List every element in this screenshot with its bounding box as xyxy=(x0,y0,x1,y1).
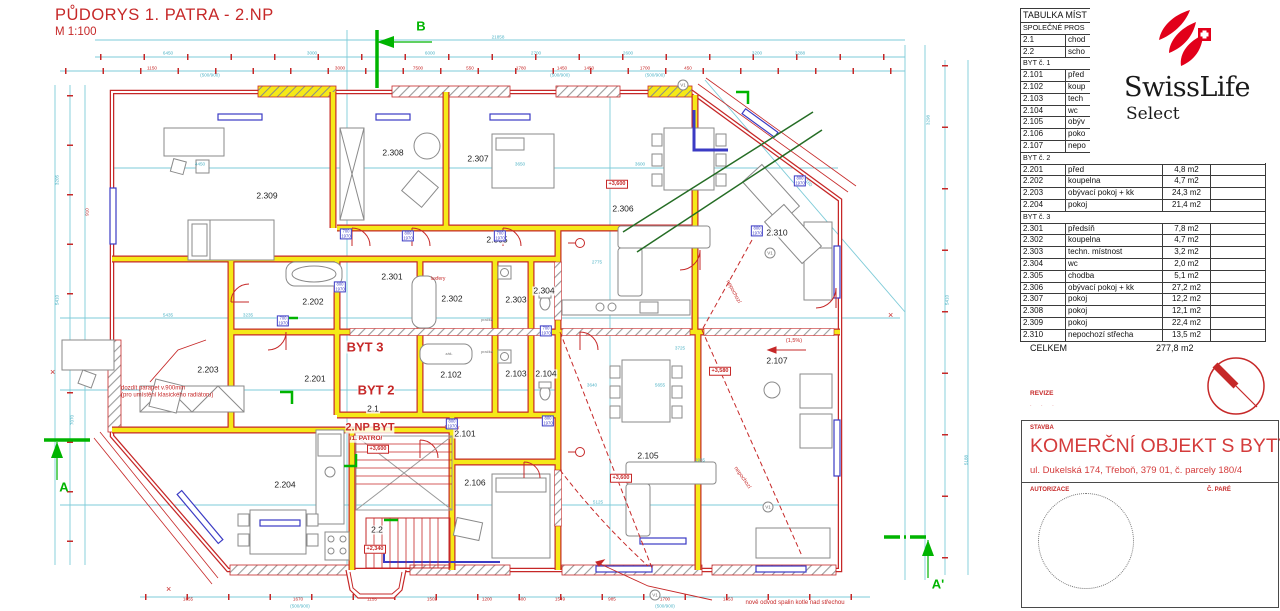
dimension-label: 5655 xyxy=(655,383,665,388)
door-size-label: 800 1970 xyxy=(751,225,763,236)
dimension-label: 3650 xyxy=(515,162,525,167)
revize-label: REVIZE xyxy=(1030,390,1053,397)
annotation: nově odvod spalin kotle nad střechou xyxy=(745,600,844,607)
dimension-label: 3600 xyxy=(635,162,645,167)
dimension-label: 3235 xyxy=(243,313,253,318)
dimension-label: 2700 xyxy=(531,51,541,56)
dimension-label: (500/900) xyxy=(645,73,665,78)
elevation-badge: +3,600 xyxy=(606,180,628,189)
room-label: 2.308 xyxy=(381,149,404,158)
room-label: 2.203 xyxy=(196,366,219,375)
annotation: nepochozí xyxy=(724,279,742,304)
room-label: 2.303 xyxy=(504,296,527,305)
room-label: 2.103 xyxy=(504,370,527,379)
table-row: 2.305chodba5,1 m2 xyxy=(1021,270,1266,282)
dimension-label: 1700 xyxy=(660,597,670,602)
room-label: 2.301 xyxy=(380,273,403,282)
section-letter: A' xyxy=(932,577,944,592)
drawing-title-block: PŮDORYS 1. PATRA - 2.NP M 1:100 xyxy=(55,6,274,38)
dimension-label: 5435 xyxy=(163,313,173,318)
swisslife-logo-icon xyxy=(1146,8,1216,74)
room-label: 2.102 xyxy=(439,371,462,380)
dimension-label: 1780 xyxy=(516,66,526,71)
table-row: 2.309pokoj22,4 m2 xyxy=(1021,317,1266,329)
dimension-label: 5125 xyxy=(593,500,603,505)
elevation-badge: +3,600 xyxy=(610,474,632,483)
room-label: 2.309 xyxy=(255,192,278,201)
dimension-label: 1502 xyxy=(427,597,437,602)
room-label: 2.105 xyxy=(636,452,659,461)
total-value: 277,8 m2 xyxy=(1156,343,1194,353)
dimension-label: 2600 xyxy=(623,51,633,56)
dimension-label: 1700 xyxy=(640,66,650,71)
dimension-label: 5410 xyxy=(55,295,60,305)
dimension-label: 450 xyxy=(684,66,692,71)
room-label: 2.104 xyxy=(534,370,557,379)
elevation-badge: +2,340 xyxy=(364,545,386,554)
dimension-label: 3288 xyxy=(795,51,805,56)
dimension-label: 5188 xyxy=(964,455,969,465)
room-label: 2.306 xyxy=(611,205,634,214)
table-row: 2.308pokoj12,1 m2 xyxy=(1021,306,1266,318)
dimension-label: (500/900) xyxy=(290,604,310,609)
drawing-title: PŮDORYS 1. PATRA - 2.NP xyxy=(55,6,274,25)
autorizace-label: AUTORIZACE xyxy=(1030,487,1069,493)
dimension-label: (500/900) xyxy=(200,73,220,78)
project-address: ul. Dukelská 174, Třeboň, 379 01, č. par… xyxy=(1030,465,1242,476)
dimension-label: 3298 xyxy=(926,115,931,125)
apartment-label: BYT 2 xyxy=(358,384,395,397)
door-size-label: 800 1970 xyxy=(334,281,346,292)
dimension-label: 2775 xyxy=(592,260,602,265)
door-size-label: 700 1970 xyxy=(277,315,289,326)
room-label: 2.204 xyxy=(273,481,296,490)
dimension-label: 5410 xyxy=(945,295,950,305)
window-marker: V1 xyxy=(763,502,774,513)
dimension-label: (500/900) xyxy=(550,73,570,78)
window-marker: V1 xyxy=(678,80,689,91)
title-block-divider xyxy=(1022,482,1278,483)
annotation: záš. xyxy=(445,351,452,358)
room-label: 2.106 xyxy=(463,479,486,488)
room-label: 2.307 xyxy=(466,155,489,164)
dimension-label: 3000 xyxy=(307,51,317,56)
table-row: 2.301předsíň7,8 m2 xyxy=(1021,223,1266,235)
section-letter: A xyxy=(59,480,68,495)
apartment-label: BYT 3 xyxy=(347,341,384,354)
dimension-label: 21858 xyxy=(492,35,505,40)
annotation: nepochozí xyxy=(732,466,752,491)
dimension-label: 1450 xyxy=(557,66,567,71)
pare-label: Č. PARÉ xyxy=(1207,487,1231,493)
dimension-label: 3640 xyxy=(587,383,597,388)
door-size-label: 800 1970 xyxy=(542,415,554,426)
revize-entries: · · · xyxy=(1030,403,1058,409)
dimension-label: 1450 xyxy=(584,66,594,71)
door-size-label: 700 1970 xyxy=(494,230,506,241)
door-size-label: 800 1970 xyxy=(446,418,458,429)
dimension-label: 1670 xyxy=(293,597,303,602)
table-row: 2.201před4,8 m2 xyxy=(1021,164,1266,176)
section-letter: B xyxy=(416,19,425,34)
annotation: (1,5%) xyxy=(786,338,802,345)
room-label: 2.310 xyxy=(765,229,788,238)
dimension-label: 4450 xyxy=(195,162,205,167)
stavba-label: STAVBA xyxy=(1030,425,1054,431)
annotation: luxfery xyxy=(431,276,446,283)
table-total-row: CELKEM 277,8 m2 xyxy=(1030,343,1067,353)
dimension-label: 910 xyxy=(85,208,90,216)
door-size-label: 700 1970 xyxy=(340,228,352,239)
door-size-label: 700 1970 xyxy=(540,325,552,336)
table-row: 2.302koupelna4,7 m2 xyxy=(1021,235,1266,247)
room-label: 2.202 xyxy=(301,298,324,307)
dimension-label: 7070 xyxy=(70,415,75,425)
annotation: pračka xyxy=(481,349,493,356)
dimension-label: 1150 xyxy=(147,66,157,71)
elevation-badge: +3,580 xyxy=(709,367,731,376)
north-arrow-icon xyxy=(1196,346,1276,426)
dimension-label: 1353 xyxy=(723,597,733,602)
dimension-label: 1155 xyxy=(367,597,377,602)
stamp-placeholder-circle xyxy=(1038,493,1134,589)
dimension-label: 7500 xyxy=(413,66,423,71)
dimension-label: 1200 xyxy=(482,597,492,602)
window-marker: V1 xyxy=(765,248,776,259)
apartment-label: /1. PATRO/ xyxy=(350,436,383,443)
table-row: 2.310nepochozí střecha13,5 m2 xyxy=(1021,329,1266,341)
drawing-scale: M 1:100 xyxy=(55,26,274,38)
project-title: KOMERČNÍ OBJEKT S BYTY xyxy=(1030,435,1280,458)
dimension-label: 6000 xyxy=(425,51,435,56)
table-row: 2.204pokoj21,4 m2 xyxy=(1021,199,1266,211)
plan-label-layer: 2.3092.3082.3072.3062.3102.3052.3012.202… xyxy=(0,0,1010,611)
room-label: 2.1 xyxy=(366,405,380,414)
total-label: CELKEM xyxy=(1030,343,1067,353)
dimension-label: 985 xyxy=(608,597,616,602)
room-label: 2.2 xyxy=(370,526,384,535)
annotation: dozdít parapet v.900mm (pro umístění kla… xyxy=(121,386,213,399)
room-label: 2.302 xyxy=(440,295,463,304)
door-size-label: 800 1970 xyxy=(794,175,806,186)
cad-drawing-page: × × × xyxy=(0,0,1280,611)
table-row: 2.203obývací pokoj + kk24,3 m2 xyxy=(1021,188,1266,200)
logo-subbrand: Select xyxy=(1126,104,1180,124)
table-row: 2.304wc2,0 m2 xyxy=(1021,258,1266,270)
dimension-label: 3000 xyxy=(335,66,345,71)
table-row: 2.307pokoj12,2 m2 xyxy=(1021,294,1266,306)
room-label: 2.107 xyxy=(765,357,788,366)
room-label: 2.304 xyxy=(532,287,555,296)
window-marker: V1 xyxy=(650,590,661,601)
table-row: 2.202koupelna4,7 m2 xyxy=(1021,176,1266,188)
dimension-label: 3725 xyxy=(675,346,685,351)
dimension-label: 1655 xyxy=(183,597,193,602)
dimension-label: (500/900) xyxy=(655,604,675,609)
dimension-label: 3200 xyxy=(752,51,762,56)
apartment-label: 2.NP BYT xyxy=(345,423,394,434)
dimension-label: 550 xyxy=(466,66,474,71)
table-section-row: BYT č. 3 xyxy=(1021,211,1266,223)
table-row: 2.303techn. místnost3,2 m2 xyxy=(1021,247,1266,259)
dimension-label: 3205 xyxy=(55,175,60,185)
dimension-label: 600 xyxy=(518,597,526,602)
title-block: STAVBA KOMERČNÍ OBJEKT S BYTY ul. Dukels… xyxy=(1021,420,1279,608)
room-label: 2.201 xyxy=(303,375,326,384)
dimension-label: 6450 xyxy=(163,51,173,56)
logo-wordmark: SwissLife xyxy=(1124,72,1250,103)
table-row: 2.306obývací pokoj + kk27,2 m2 xyxy=(1021,282,1266,294)
elevation-badge: +3,600 xyxy=(367,445,389,454)
logo-box: SwissLife Select xyxy=(1090,0,1280,163)
dimension-label: 2985 xyxy=(695,458,705,463)
door-size-label: 800 1970 xyxy=(402,230,414,241)
dimension-label: 1549 xyxy=(555,597,565,602)
annotation: pračka xyxy=(481,317,493,324)
